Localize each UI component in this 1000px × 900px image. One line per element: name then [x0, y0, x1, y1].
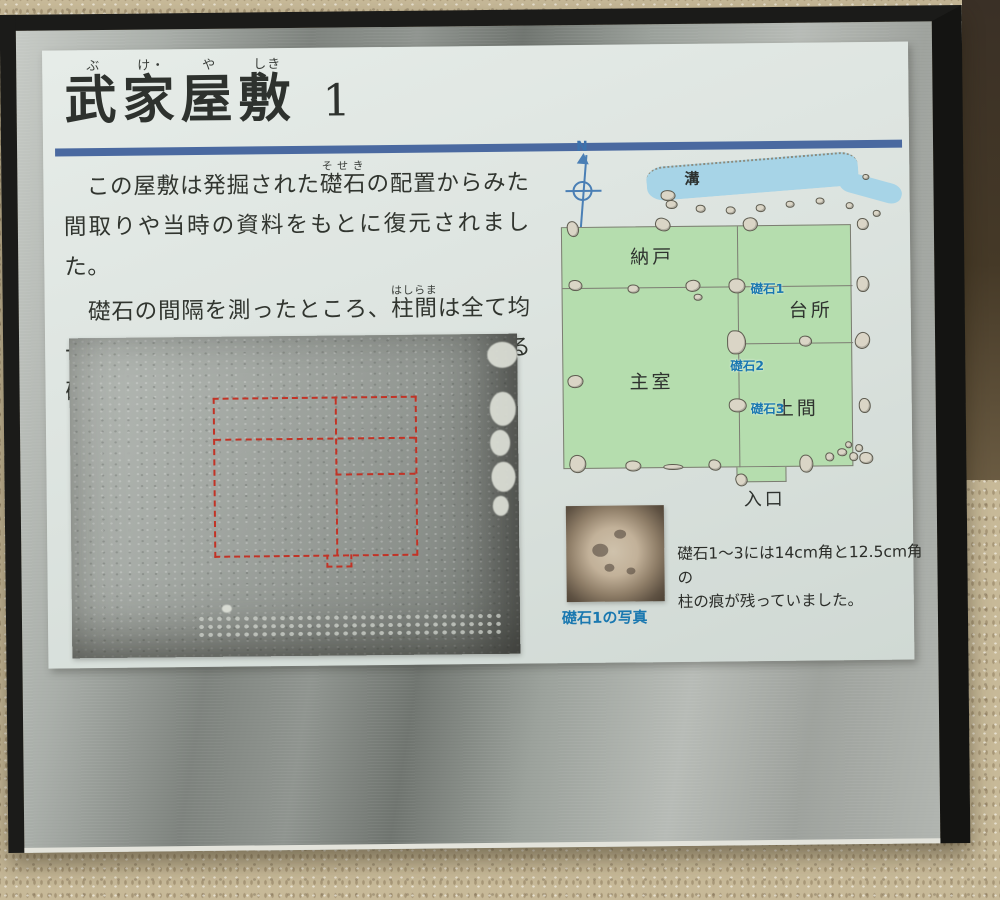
title-char: 武ぶ — [64, 70, 123, 132]
foundation-stone — [663, 464, 683, 470]
gravel-band — [197, 612, 502, 641]
foundation-stone — [845, 441, 852, 448]
ditch-shape — [645, 151, 859, 202]
room-label-shushitsu: 主室 — [629, 367, 673, 394]
foundation-stone — [816, 197, 825, 204]
room-label-nando: 納戸 — [630, 242, 674, 269]
foundation-stone — [849, 452, 858, 461]
stone-label-1: 礎石1 — [750, 278, 784, 297]
foundation-stone-1 — [728, 278, 745, 293]
foundation-stone — [857, 218, 869, 230]
foundation-stone — [852, 329, 873, 351]
ditch-tail — [837, 170, 904, 206]
foundation-stone — [862, 174, 869, 180]
outline-crossline-2 — [335, 473, 415, 476]
title-number: 1 — [322, 75, 351, 126]
excavation-photo — [69, 334, 520, 659]
foundation-stone — [726, 206, 736, 214]
outline-crossline-1 — [215, 437, 415, 441]
outline-divider — [335, 399, 339, 555]
plan-line-2 — [738, 342, 853, 344]
title-char: 家け・ — [122, 69, 181, 131]
stone-label-3: 礎石3 — [751, 398, 785, 417]
foundation-stone — [756, 204, 766, 212]
excavation-outline — [213, 396, 419, 558]
plan-building: 納戸 台所 主室 土間 礎石1 礎石2 礎石3 — [561, 224, 854, 469]
foundation-stone — [837, 448, 847, 456]
background-wall-shadow — [962, 0, 1000, 480]
sign-board: 武ぶ家け・屋や敷しき1 この屋敷は発掘された礎石そせきの配置からみた間取りや当時… — [0, 5, 970, 853]
foundation-stone — [625, 460, 641, 471]
foundation-stone — [859, 452, 873, 464]
foundation-stone — [799, 455, 813, 473]
page-title: 武ぶ家け・屋や敷しき1 — [64, 55, 351, 133]
foundation-stone — [799, 336, 812, 347]
foundation-stone — [859, 398, 871, 413]
ditch-label: 溝 — [684, 168, 699, 189]
foundation-stone — [873, 210, 881, 217]
foundation-stone — [856, 276, 869, 292]
plan-line-1 — [563, 285, 853, 289]
foundation-stone — [786, 201, 795, 208]
title-char: 敷しき — [238, 68, 297, 130]
foundation-stone-3 — [729, 398, 747, 412]
site-plan: N 溝 納戸 台所 主室 土間 礎石1 礎石2 礎石3 — [546, 136, 908, 512]
stone-photo-caption: 礎石1の写真 — [562, 606, 648, 628]
stone-label-2: 礎石2 — [730, 355, 764, 374]
foundation-stone — [696, 205, 706, 213]
foundation-stone-2 — [727, 330, 746, 354]
entrance-label: 入口 — [744, 485, 786, 511]
foundation-stone — [825, 452, 834, 461]
foundation-stone — [627, 284, 639, 293]
outline-entrance-step — [326, 554, 352, 567]
stone-note: 礎石1～3には14cm角と12.5cm角の 柱の痕が残っていました。 — [677, 539, 934, 614]
foundation-stone — [855, 444, 863, 452]
foundation-stone — [846, 202, 854, 209]
sign-paper: 武ぶ家け・屋や敷しき1 この屋敷は発掘された礎石そせきの配置からみた間取りや当時… — [42, 42, 914, 669]
foundation-stone — [694, 294, 703, 301]
title-char: 屋や — [180, 69, 239, 131]
foundation-stone — [666, 200, 678, 209]
paragraph-1: この屋敷は発掘された礎石そせきの配置からみた間取りや当時の資料をもとに復元されま… — [63, 158, 530, 288]
stone-photo — [566, 505, 665, 602]
room-label-daidokoro: 台所 — [789, 295, 833, 322]
